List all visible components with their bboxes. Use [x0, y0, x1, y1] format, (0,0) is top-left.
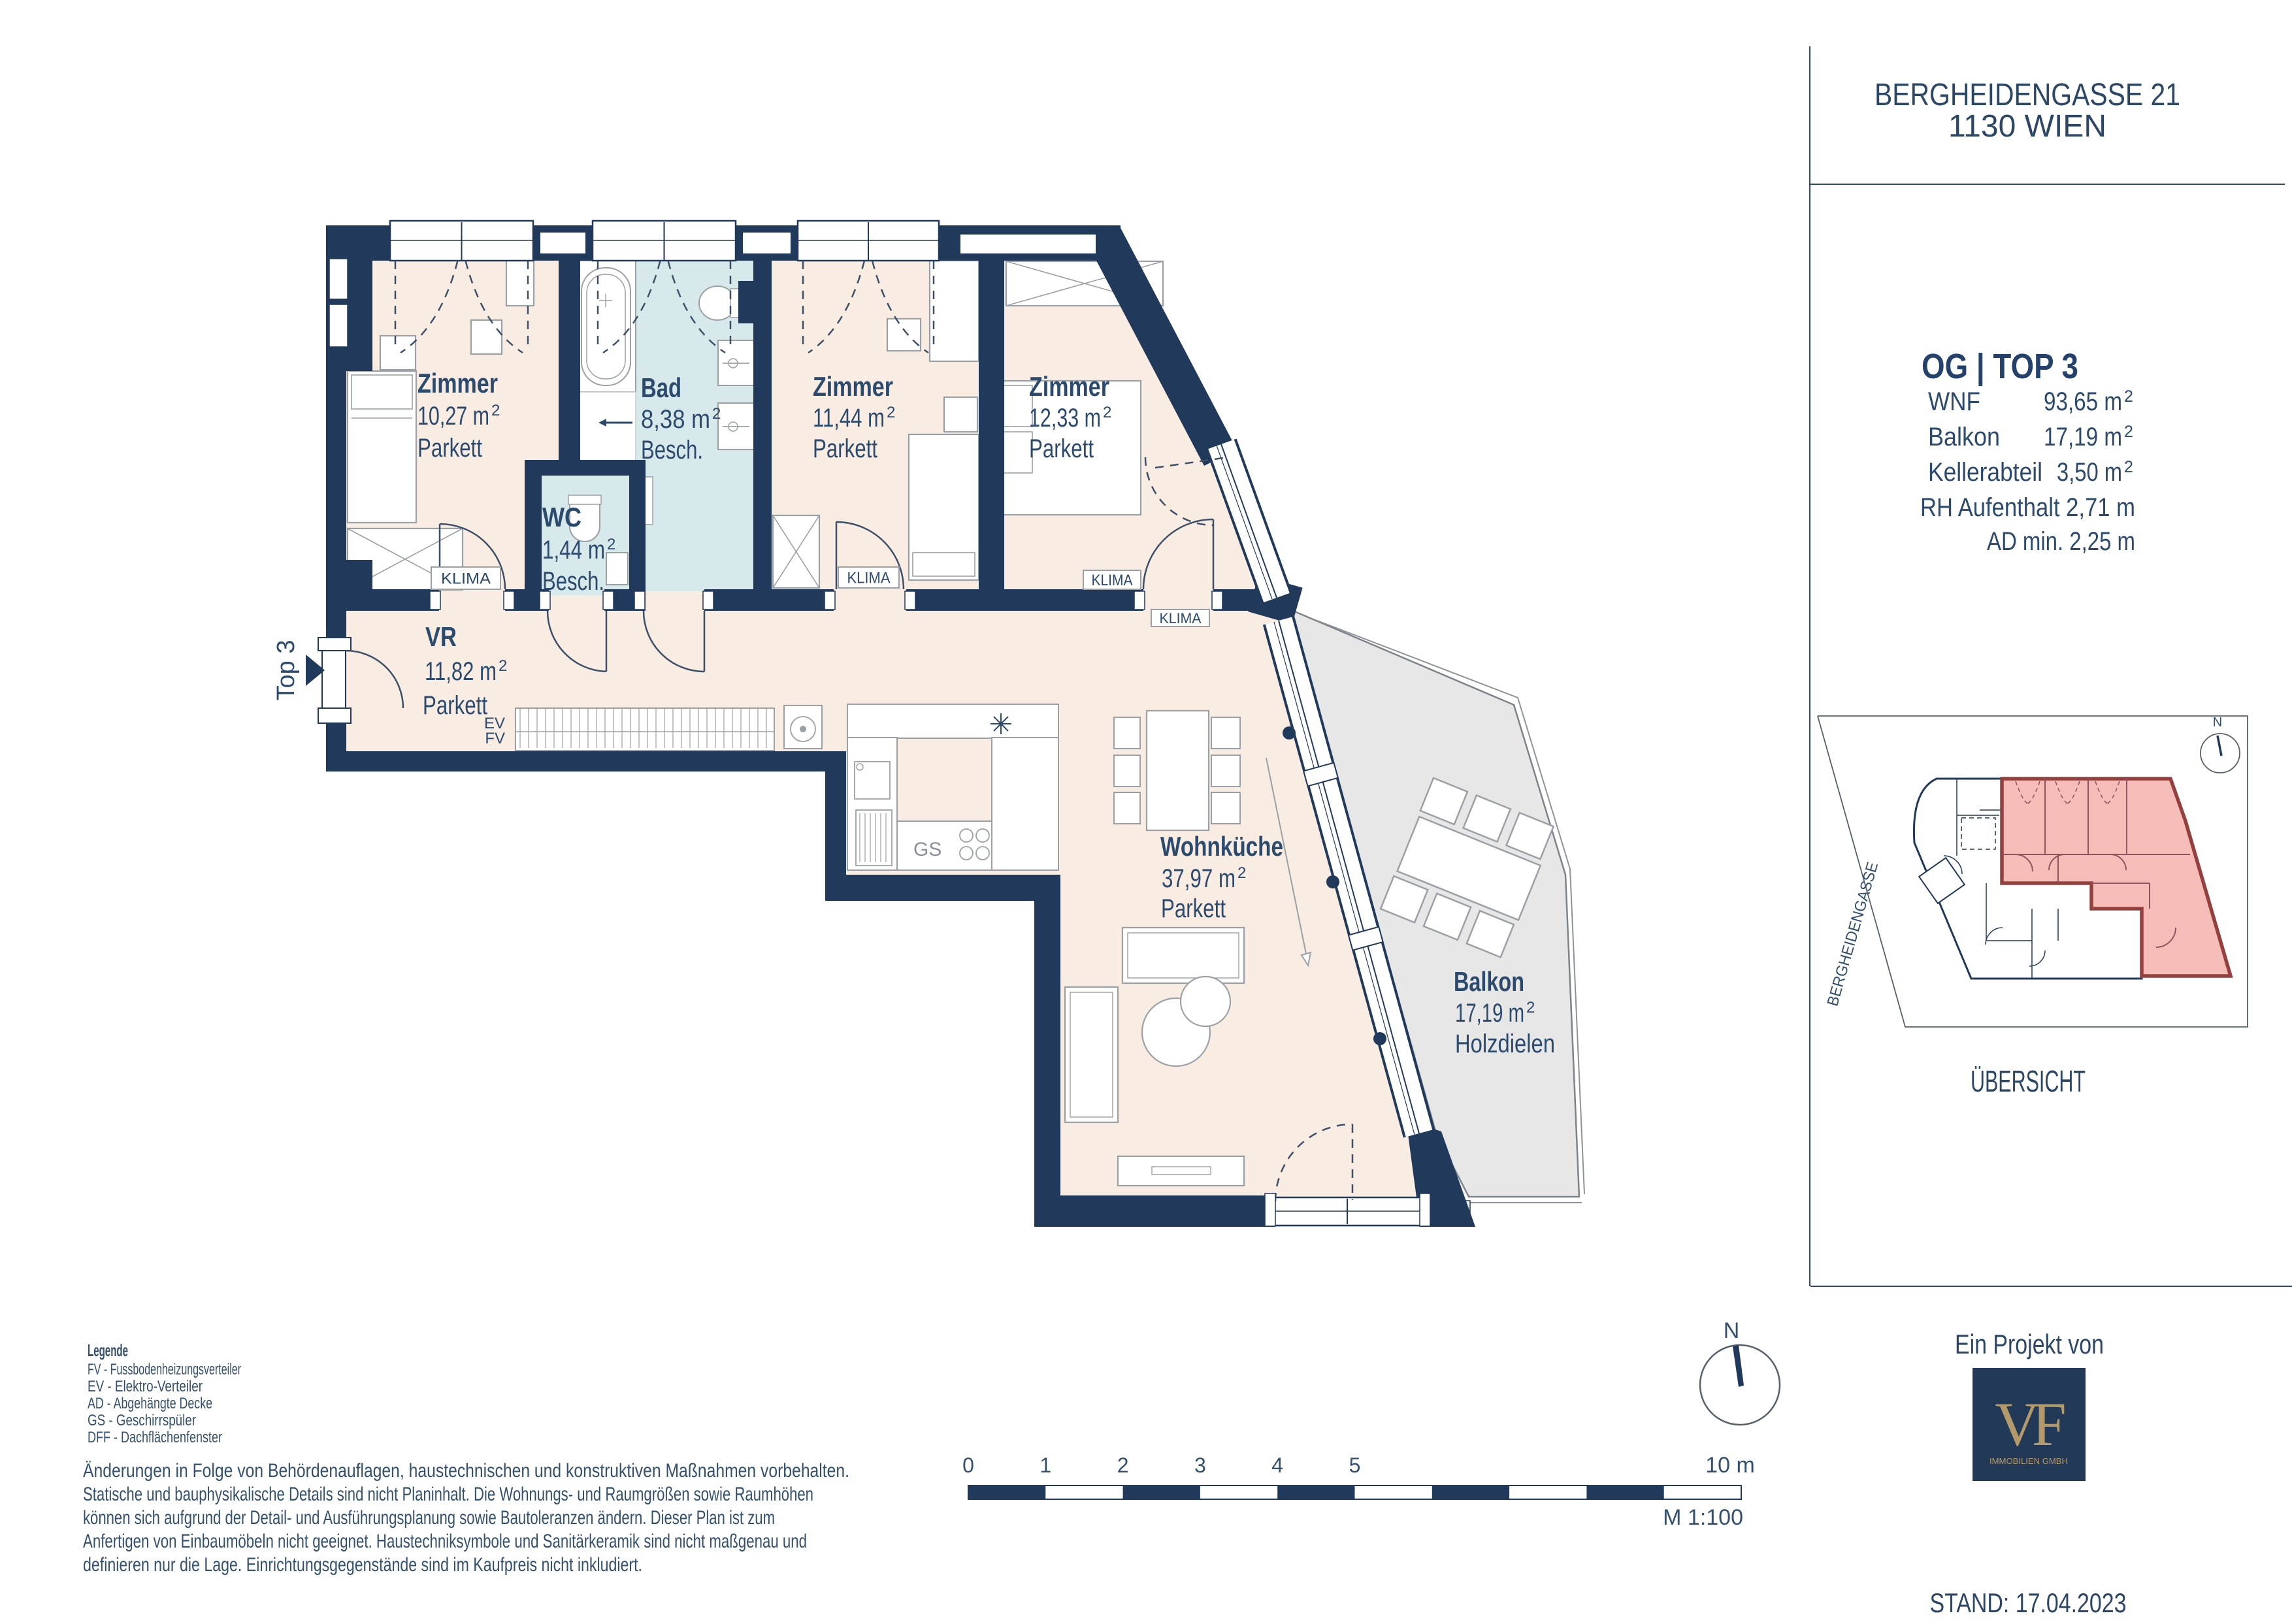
svg-text:2: 2: [2124, 423, 2133, 441]
svg-text:KLIMA: KLIMA: [847, 570, 891, 587]
svg-text:definieren nur die Lage. Einri: definieren nur die Lage. Einrichtungsgeg…: [83, 1554, 642, 1576]
svg-text:1130 WIEN: 1130 WIEN: [1948, 109, 2106, 144]
svg-text:Parkett: Parkett: [1161, 894, 1226, 923]
svg-text:2: 2: [1237, 864, 1246, 882]
svg-text:Besch.: Besch.: [542, 567, 604, 596]
svg-text:2: 2: [712, 405, 721, 423]
svg-text:Änderungen in Folge von Behörd: Änderungen in Folge von Behördenauflagen…: [83, 1460, 849, 1482]
svg-text:N: N: [1724, 1318, 1740, 1343]
svg-text:2: 2: [2124, 458, 2133, 476]
svg-text:IMMOBILIEN GMBH: IMMOBILIEN GMBH: [1989, 1456, 2068, 1466]
svg-text:Top 3: Top 3: [272, 640, 300, 701]
svg-text:4: 4: [1271, 1453, 1283, 1477]
svg-text:GS: GS: [913, 839, 941, 860]
svg-text:1: 1: [1040, 1453, 1051, 1477]
svg-text:Holzdielen: Holzdielen: [1455, 1030, 1555, 1058]
svg-text:N: N: [2213, 715, 2222, 730]
svg-text:FV - Fussbodenheizungsverteile: FV - Fussbodenheizungsverteiler: [88, 1361, 241, 1378]
svg-text:93,65 m: 93,65 m: [2044, 387, 2122, 416]
svg-text:FV: FV: [485, 730, 505, 747]
svg-text:2: 2: [491, 402, 500, 419]
svg-text:WNF: WNF: [1928, 387, 1980, 416]
svg-text:Kellerabteil: Kellerabteil: [1928, 458, 2042, 487]
svg-text:2: 2: [499, 657, 507, 675]
svg-text:2: 2: [1103, 404, 1111, 421]
svg-text:können sich aufgrund der Detai: können sich aufgrund der Detail- und Aus…: [83, 1507, 775, 1529]
svg-text:Besch.: Besch.: [641, 436, 703, 464]
svg-text:Bad: Bad: [641, 372, 681, 403]
svg-text:Zimmer: Zimmer: [1029, 371, 1109, 402]
svg-text:M 1:100: M 1:100: [1663, 1505, 1743, 1530]
svg-text:KLIMA: KLIMA: [1092, 572, 1133, 589]
svg-text:Zimmer: Zimmer: [417, 368, 498, 398]
svg-text:Zimmer: Zimmer: [813, 371, 893, 402]
svg-text:11,82 m: 11,82 m: [425, 657, 497, 686]
svg-text:17,19 m: 17,19 m: [2044, 423, 2122, 451]
svg-text:Parkett: Parkett: [423, 691, 487, 720]
svg-text:STAND: 17.04.2023: STAND: 17.04.2023: [1930, 1587, 2127, 1618]
svg-text:Wohnküche: Wohnküche: [1160, 831, 1283, 862]
svg-text:RH Aufenthalt 2,71 m: RH Aufenthalt 2,71 m: [1920, 493, 2135, 522]
svg-text:BERGHEIDENGASSE 21: BERGHEIDENGASSE 21: [1875, 78, 2180, 112]
svg-text:11,44 m: 11,44 m: [813, 404, 885, 432]
svg-text:Parkett: Parkett: [1029, 434, 1094, 463]
svg-text:OG | TOP 3: OG | TOP 3: [1922, 347, 2078, 387]
svg-text:3,50 m: 3,50 m: [2057, 458, 2122, 487]
svg-text:Parkett: Parkett: [417, 434, 482, 463]
svg-text:AD - Abgehängte Decke: AD - Abgehängte Decke: [88, 1395, 212, 1412]
svg-text:3: 3: [1194, 1453, 1206, 1477]
svg-text:17,19 m: 17,19 m: [1455, 999, 1524, 1028]
svg-text:Statische und bauphysikalische: Statische und bauphysikalische Details s…: [83, 1484, 813, 1505]
svg-text:Balkon: Balkon: [1928, 423, 2000, 451]
svg-text:Anfertigen von Einbaumöbeln ni: Anfertigen von Einbaumöbeln nicht geeign…: [83, 1531, 807, 1552]
svg-text:10,27 m: 10,27 m: [417, 402, 489, 430]
svg-text:8,38 m: 8,38 m: [641, 405, 710, 434]
svg-text:2: 2: [1117, 1453, 1129, 1477]
svg-text:VF: VF: [1995, 1389, 2065, 1459]
svg-text:37,97 m: 37,97 m: [1162, 864, 1236, 893]
svg-text:Balkon: Balkon: [1454, 966, 1524, 997]
svg-text:AD min. 2,25 m: AD min. 2,25 m: [1987, 527, 2135, 556]
svg-text:VR: VR: [425, 621, 457, 652]
svg-text:10 m: 10 m: [1705, 1453, 1755, 1478]
svg-text:2: 2: [607, 536, 615, 553]
svg-text:2: 2: [2124, 387, 2133, 406]
svg-text:12,33 m: 12,33 m: [1029, 404, 1101, 432]
svg-text:2: 2: [1526, 999, 1535, 1016]
svg-text:2: 2: [887, 404, 895, 421]
svg-text:Ein Projekt von: Ein Projekt von: [1955, 1329, 2104, 1359]
svg-text:EV - Elektro-Verteiler: EV - Elektro-Verteiler: [88, 1378, 203, 1395]
svg-text:ÜBERSICHT: ÜBERSICHT: [1971, 1064, 2086, 1098]
svg-text:KLIMA: KLIMA: [441, 570, 491, 588]
svg-text:KLIMA: KLIMA: [1160, 610, 1202, 626]
svg-text:GS - Geschirrspüler: GS - Geschirrspüler: [88, 1412, 196, 1429]
svg-text:1,44 m: 1,44 m: [542, 536, 605, 564]
svg-text:0: 0: [962, 1453, 974, 1477]
svg-text:Parkett: Parkett: [813, 434, 877, 463]
svg-text:5: 5: [1349, 1453, 1361, 1477]
svg-text:DFF - Dachflächenfenster: DFF - Dachflächenfenster: [88, 1429, 222, 1446]
svg-text:Legende: Legende: [88, 1340, 128, 1360]
svg-text:WC: WC: [542, 502, 581, 532]
